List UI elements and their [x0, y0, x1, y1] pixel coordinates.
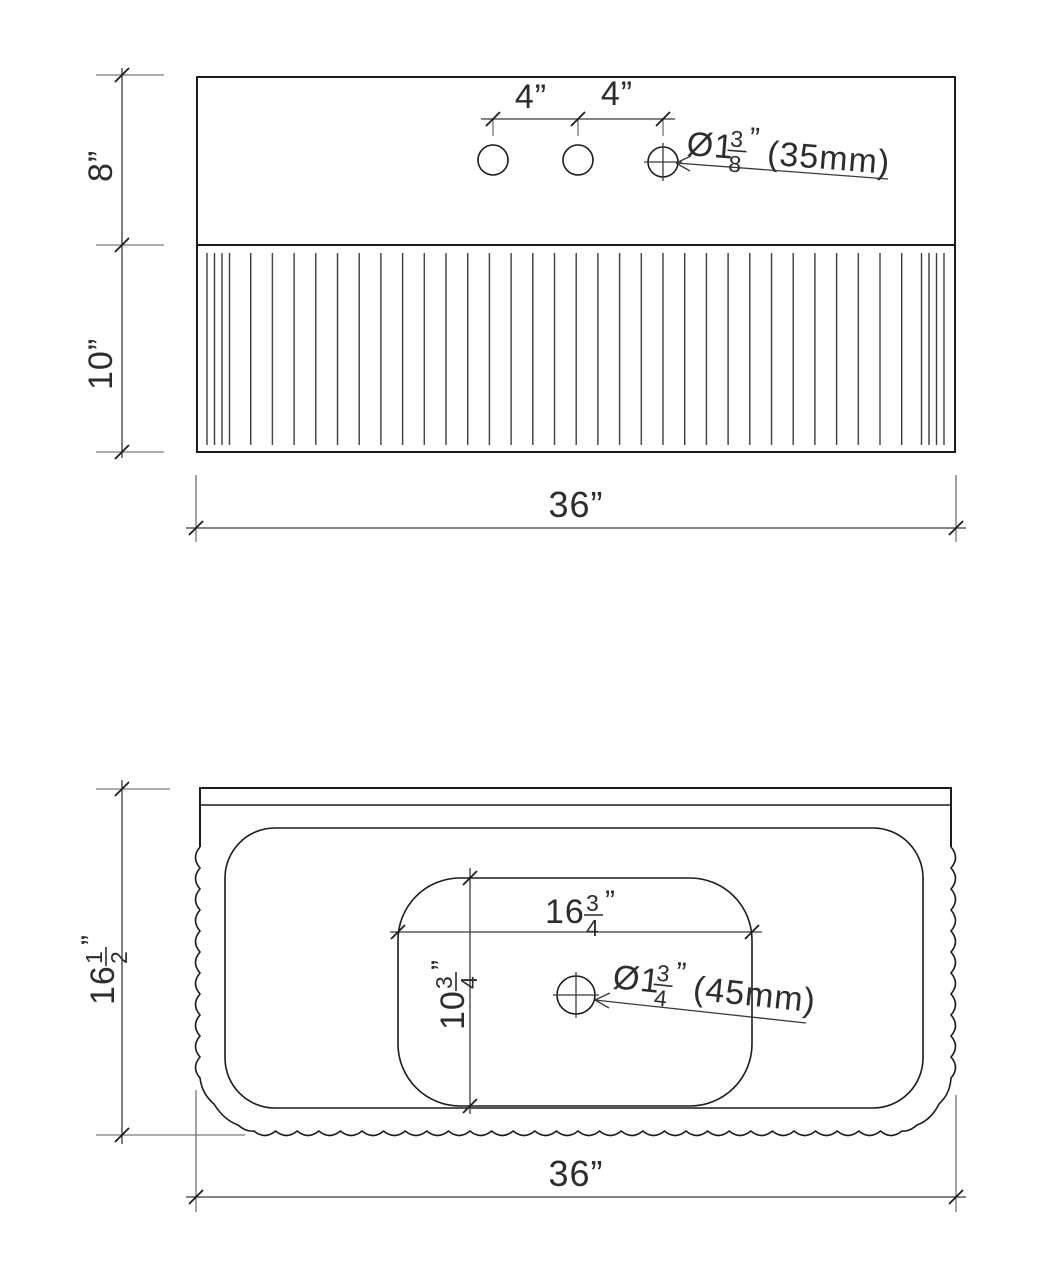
dim-basin-width-unit: ” [605, 885, 615, 918]
dim-hole-spacing: 4” 4” [481, 75, 675, 136]
callout-faucet-numerator: 3 [729, 125, 744, 152]
dim-plan-depth-denominator: 2 [106, 951, 132, 964]
callout-drain-hole: Ø1 3 4 ” (45mm) [595, 950, 819, 1027]
dim-10in-label: 10” [82, 338, 120, 390]
callout-faucet-metric: (35mm) [766, 134, 892, 182]
faucet-hole-right-with-crosshair [644, 143, 682, 181]
flute-edge-cluster-right [922, 253, 945, 445]
dim-basin-width: 16 3 4 ” [390, 885, 762, 941]
faucet-hole-center [563, 145, 593, 175]
dim-basin-depth-whole: 10 [434, 990, 472, 1030]
dim-basin-depth-unit: ” [426, 960, 459, 970]
drain-hole-with-crosshair [553, 972, 599, 1018]
callout-faucet-hole: Ø1 3 8 ” (35mm) [676, 117, 892, 189]
dim-front-width: 36” [186, 475, 966, 542]
dim-basin-depth-denominator: 4 [456, 976, 482, 989]
flute-lines-pattern [246, 253, 910, 445]
dim-front-heights: 8” 10” [82, 68, 164, 459]
dim-plan-depth-unit: ” [76, 935, 109, 945]
callout-drain-unit: ” [674, 957, 687, 991]
dim-8in-label: 8” [82, 150, 120, 182]
dim-hole-right-label: 4” [601, 75, 633, 113]
callout-drain-numerator: 3 [655, 960, 670, 987]
dim-front-width-label: 36” [548, 484, 603, 525]
dim-hole-left-label: 4” [515, 78, 547, 116]
dim-plan-width-label: 36” [548, 1153, 603, 1194]
callout-faucet-denominator: 8 [727, 150, 742, 177]
front-elevation-view: 4” 4” Ø1 3 8 ” (35mm) 8 [82, 68, 966, 542]
dim-basin-width-whole: 16 [545, 893, 585, 931]
dim-plan-depth-numerator: 1 [81, 951, 107, 964]
sink-technical-drawing: 4” 4” Ø1 3 8 ” (35mm) 8 [0, 0, 1038, 1276]
plan-countertop-outline [225, 828, 923, 1108]
faucet-hole-left [478, 145, 508, 175]
dim-basin-width-numerator: 3 [586, 890, 599, 916]
flute-edge-cluster-left [207, 253, 230, 445]
plan-back-band [200, 788, 951, 847]
plan-view: 16 3 4 ” 10 3 4 ” [76, 780, 966, 1212]
dim-plan-depth-whole: 16 [84, 965, 122, 1005]
dim-basin-width-denominator: 4 [586, 915, 599, 941]
dim-basin-depth-numerator: 3 [431, 976, 457, 989]
dim-basin-depth: 10 3 4 ” [426, 868, 482, 1114]
dim-plan-depth: 16 1 2 ” [76, 780, 245, 1144]
callout-faucet-unit: ” [748, 122, 761, 156]
drawing-canvas: 4” 4” Ø1 3 8 ” (35mm) 8 [0, 0, 1038, 1276]
